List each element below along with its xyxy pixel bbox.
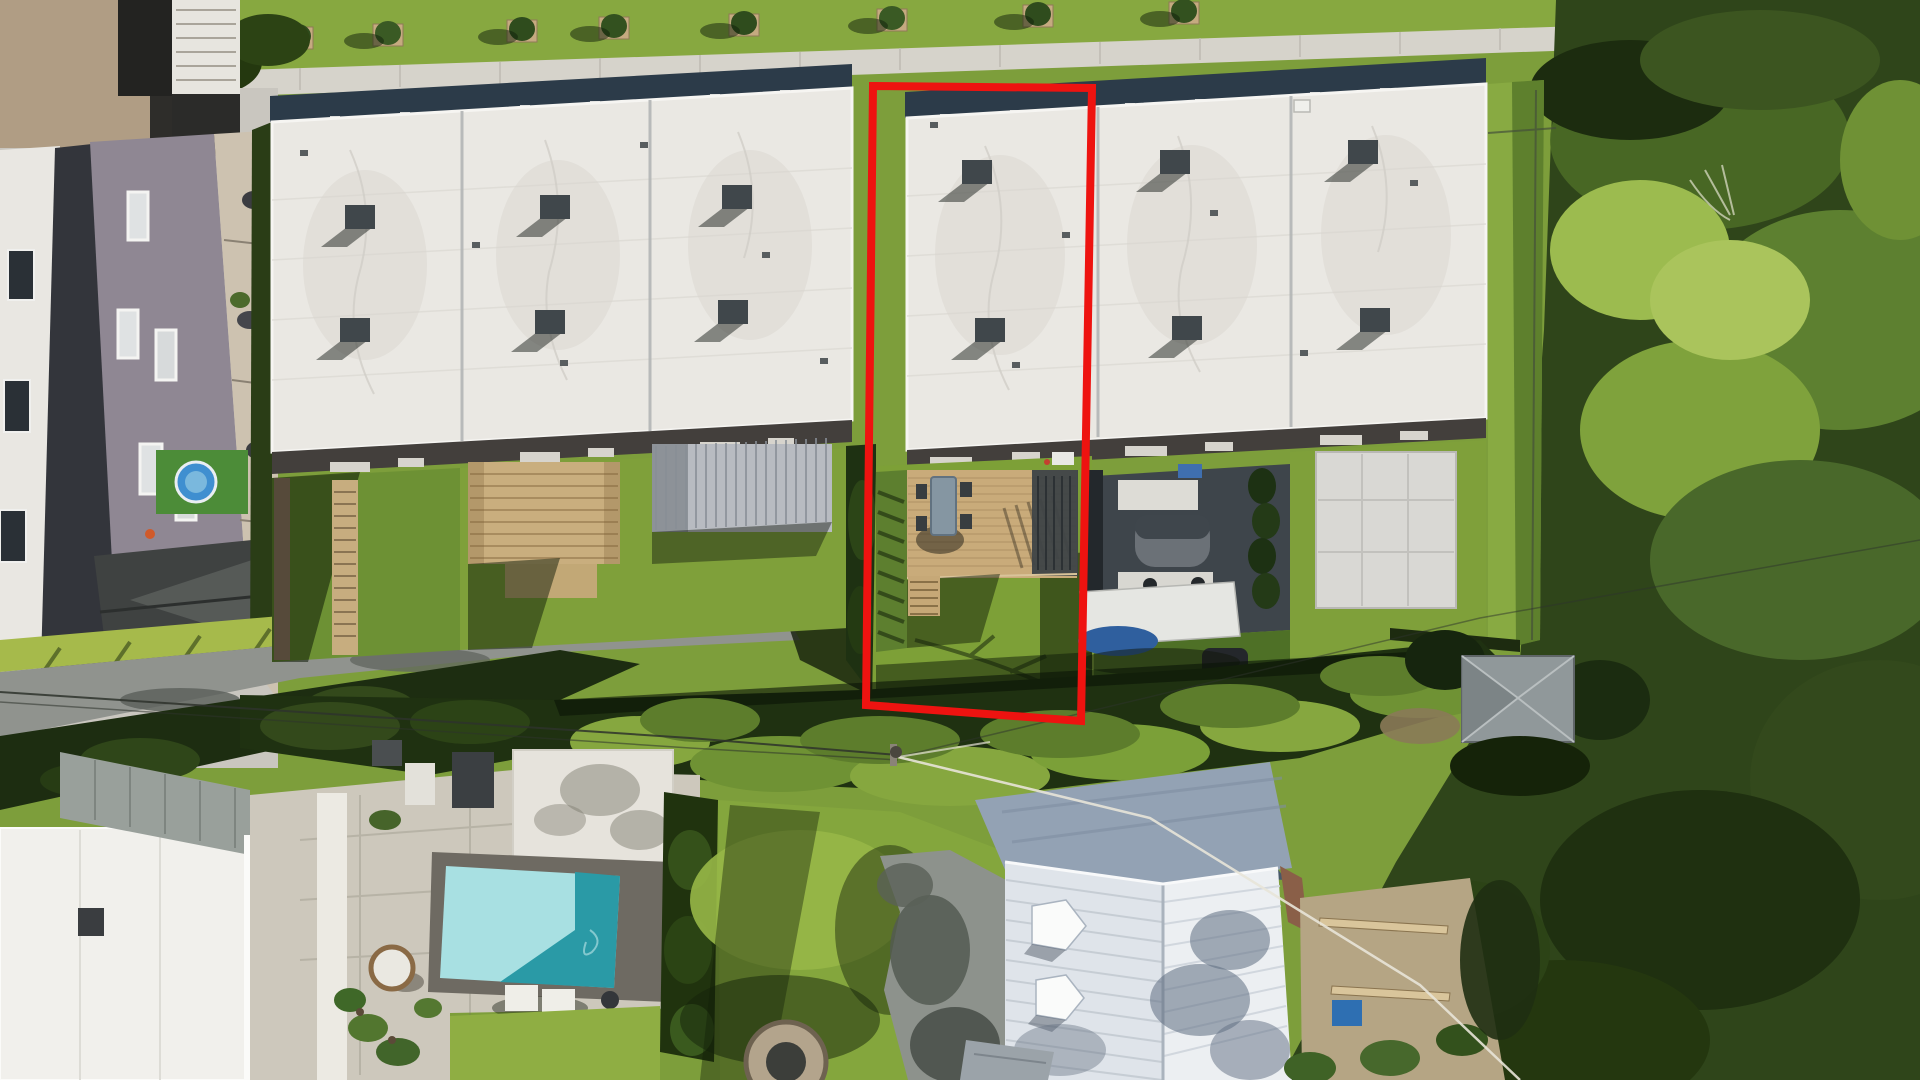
patio-plant bbox=[369, 810, 401, 830]
conifer bbox=[1248, 468, 1276, 504]
planter-shadow bbox=[700, 23, 740, 39]
poolside-plant bbox=[376, 1038, 420, 1066]
roof-smudge bbox=[1321, 135, 1451, 335]
pergola-screen bbox=[468, 462, 484, 564]
forest-canopy bbox=[1650, 240, 1810, 360]
right-townhouse-block bbox=[905, 58, 1486, 470]
shed-dirt bbox=[1380, 708, 1460, 744]
white-flat-roof bbox=[0, 828, 250, 1080]
hedge-strip bbox=[250, 122, 272, 672]
window bbox=[156, 330, 176, 380]
hvac-unit bbox=[975, 318, 1005, 342]
hvac-unit bbox=[962, 160, 992, 184]
corrugated-shaded-part bbox=[652, 444, 688, 532]
patio-chair bbox=[916, 484, 927, 499]
hvac-unit bbox=[1348, 140, 1378, 164]
hvac-unit bbox=[718, 300, 748, 324]
patio-table bbox=[931, 477, 956, 535]
conifer bbox=[1252, 503, 1280, 539]
window bbox=[0, 510, 26, 562]
canopy-shadow-dapple bbox=[534, 804, 586, 836]
roof-vent bbox=[78, 908, 104, 936]
forest-canopy bbox=[1640, 10, 1880, 110]
patio-chair bbox=[960, 514, 972, 529]
hvac-unit bbox=[1172, 316, 1202, 340]
yard-6-garage-roof bbox=[1316, 452, 1456, 608]
kiddie-pool-water bbox=[185, 471, 207, 493]
hvac-unit bbox=[535, 310, 565, 334]
roof-hatch-white bbox=[1294, 100, 1310, 112]
window bbox=[118, 310, 138, 358]
aerial-photo-stage bbox=[0, 0, 1920, 1080]
planter-shadow bbox=[570, 26, 610, 42]
planter-shadow bbox=[848, 18, 888, 34]
dark-roof-section bbox=[118, 0, 172, 96]
patio-chair bbox=[372, 740, 402, 766]
wooden-hot-tub bbox=[371, 947, 413, 989]
poolside-plant bbox=[414, 998, 442, 1018]
hvac-unit bbox=[540, 195, 570, 219]
hvac-unit bbox=[1160, 150, 1190, 174]
side-lawn-shadow bbox=[1512, 80, 1544, 646]
pergola-screen bbox=[604, 462, 620, 564]
planter-pot bbox=[356, 1008, 364, 1016]
left-townhouse-block bbox=[270, 64, 852, 474]
yard-1-fence bbox=[274, 478, 290, 660]
hot-tub-cover-shade bbox=[1135, 515, 1210, 539]
planter-shadow bbox=[344, 33, 384, 49]
poolside-plant bbox=[348, 1014, 388, 1042]
tree-shadow-on-roof bbox=[1190, 910, 1270, 970]
hedge-canopy bbox=[410, 700, 530, 744]
hedge-canopy bbox=[1160, 684, 1300, 728]
patio-chair bbox=[916, 516, 927, 531]
planter-shadow bbox=[994, 14, 1034, 30]
aerial-photo bbox=[0, 0, 1920, 1080]
white-strip bbox=[317, 793, 347, 1080]
toy bbox=[145, 529, 155, 539]
pole-transformer bbox=[890, 746, 902, 758]
yard-1-wood-walkway bbox=[332, 480, 358, 655]
conifer bbox=[1248, 538, 1276, 574]
patio-chair bbox=[960, 482, 972, 497]
path-shadow bbox=[877, 863, 933, 907]
blue-cushion bbox=[1178, 464, 1202, 478]
yard-2-pergola bbox=[468, 462, 620, 564]
side-table bbox=[601, 991, 619, 1009]
canopy-shadow-dapple bbox=[610, 810, 670, 850]
shed-tree bbox=[1450, 736, 1590, 796]
grill-knob bbox=[1044, 459, 1050, 465]
window bbox=[128, 192, 148, 240]
hvac-unit bbox=[722, 185, 752, 209]
patio-sofa bbox=[452, 752, 494, 808]
yard-shrub bbox=[1360, 1040, 1420, 1076]
pool-lounger bbox=[505, 985, 538, 1011]
bottom-house bbox=[960, 762, 1308, 1080]
window bbox=[4, 380, 30, 432]
conifer bbox=[1252, 573, 1280, 609]
terrace-plant bbox=[230, 292, 250, 308]
blue-tarp-item bbox=[1332, 1000, 1362, 1026]
hedge-canopy bbox=[800, 716, 960, 764]
planter-pot bbox=[388, 1036, 396, 1044]
outdoor-kitchen-counter bbox=[1118, 480, 1198, 510]
planter-shadow bbox=[1140, 11, 1180, 27]
hvac-unit bbox=[345, 205, 375, 229]
patio-table bbox=[405, 763, 435, 805]
tree-shadow-on-roof bbox=[1210, 1020, 1290, 1080]
window bbox=[8, 250, 34, 300]
grill-tank bbox=[1052, 452, 1074, 465]
path-shadow bbox=[890, 895, 970, 1005]
hvac-unit bbox=[340, 318, 370, 342]
planter-shadow bbox=[478, 29, 518, 45]
lawn-south bbox=[450, 1006, 660, 1080]
hvac-unit bbox=[1360, 308, 1390, 332]
roof-smudge bbox=[1127, 145, 1257, 345]
yard-dark-edge bbox=[1460, 880, 1540, 1040]
